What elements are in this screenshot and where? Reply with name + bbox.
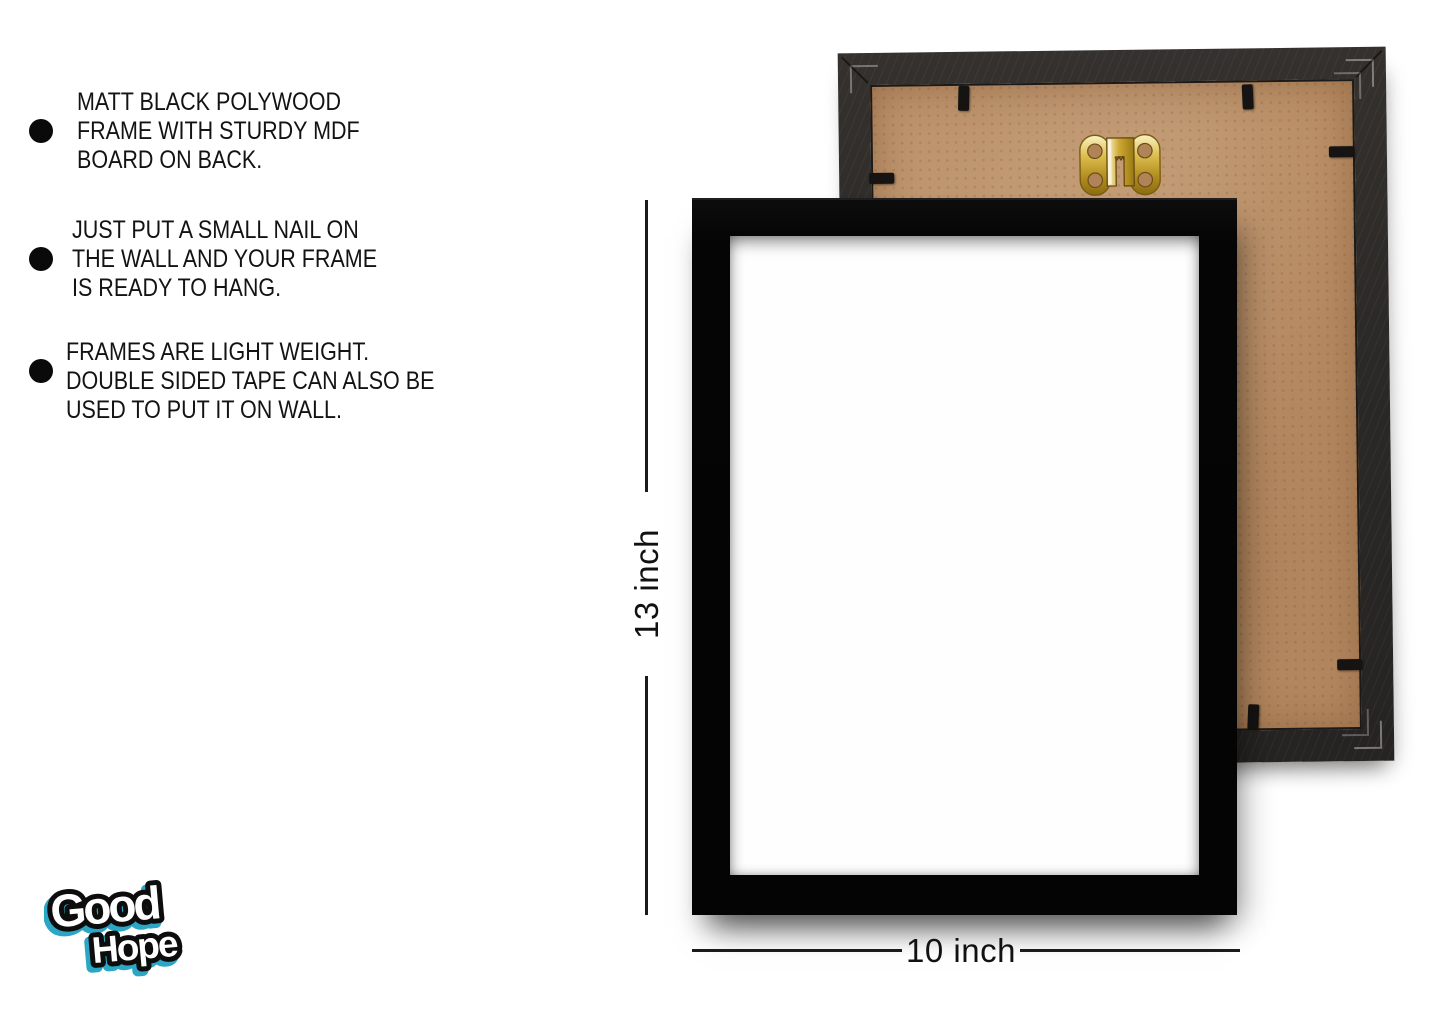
retainer-clip <box>1242 84 1254 109</box>
good-hope-logo: Good Hope Good Hope <box>44 870 196 982</box>
retainer-clip <box>1329 146 1354 157</box>
retainer-clip <box>1247 704 1259 729</box>
width-dimension-label: 10 inch <box>906 932 1016 970</box>
bullet-icon <box>29 119 53 143</box>
height-dimension-line <box>645 676 648 915</box>
retainer-clip <box>1337 659 1362 670</box>
retainer-clip <box>958 86 970 111</box>
sawtooth-hanger-icon <box>1075 129 1166 200</box>
width-dimension-line <box>1020 949 1240 952</box>
feature-text-material: MATT BLACK POLYWOOD FRAME WITH STURDY MD… <box>77 88 360 175</box>
frame-front-view <box>692 198 1237 915</box>
height-dimension-line <box>645 200 648 492</box>
retainer-clip <box>869 173 894 184</box>
bullet-icon <box>29 359 53 383</box>
product-infographic: MATT BLACK POLYWOOD FRAME WITH STURDY MD… <box>0 0 1445 1025</box>
logo-word2: Hope <box>90 923 179 971</box>
frame-opening <box>730 236 1199 875</box>
width-dimension-line <box>692 949 902 952</box>
feature-text-weight: FRAMES ARE LIGHT WEIGHT. DOUBLE SIDED TA… <box>66 338 434 425</box>
bullet-icon <box>29 247 53 271</box>
height-dimension-label: 13 inch <box>628 529 666 639</box>
feature-text-hanging: JUST PUT A SMALL NAIL ON THE WALL AND YO… <box>72 216 377 303</box>
